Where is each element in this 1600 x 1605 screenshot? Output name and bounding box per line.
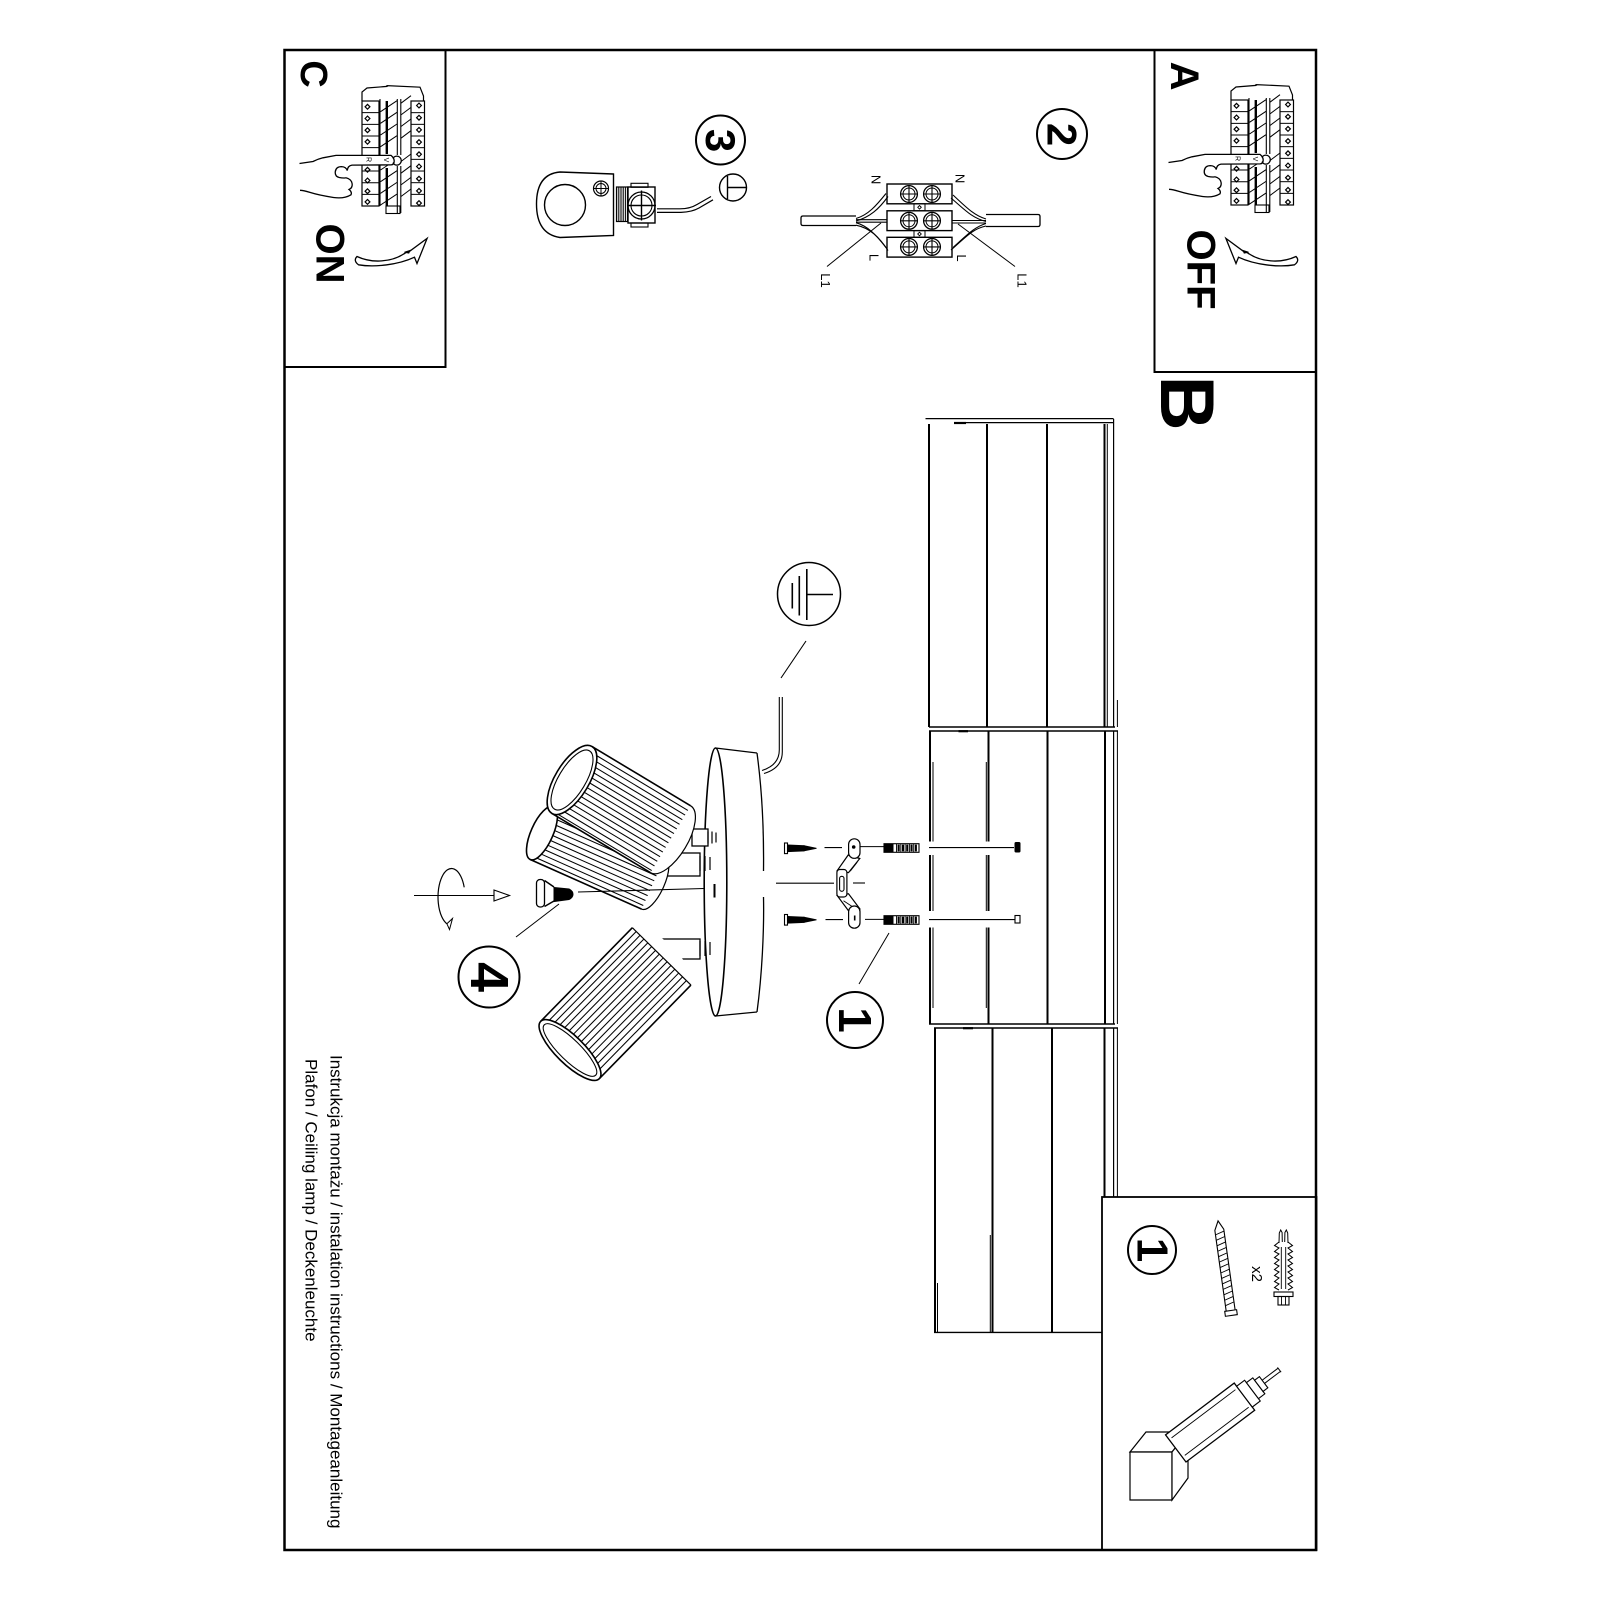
svg-text:R: R [365, 157, 372, 162]
svg-text:V: V [382, 158, 389, 163]
svg-text:L: L [867, 254, 882, 261]
svg-text:1: 1 [829, 1007, 881, 1033]
svg-text:3: 3 [697, 129, 744, 152]
svg-text:2: 2 [1039, 123, 1086, 146]
svg-text:C: C [292, 60, 334, 87]
svg-text:OFF: OFF [1179, 230, 1223, 310]
svg-text:x2: x2 [1248, 1266, 1265, 1282]
svg-text:L1: L1 [818, 273, 833, 287]
svg-text:Instrukcja montażu / instalati: Instrukcja montażu / instalation instruc… [327, 1055, 346, 1528]
svg-text:B: B [1144, 376, 1229, 431]
svg-text:L1: L1 [1015, 273, 1030, 287]
svg-text:N: N [869, 175, 884, 184]
svg-text:A: A [1162, 62, 1206, 91]
svg-text:L: L [954, 254, 969, 261]
svg-text:Plafon / Ceiling lamp / Decken: Plafon / Ceiling lamp / Deckenleuchte [302, 1059, 321, 1342]
svg-text:ON: ON [308, 224, 352, 284]
svg-text:4: 4 [459, 962, 519, 992]
svg-text:1: 1 [1128, 1238, 1177, 1262]
svg-text:N: N [953, 174, 968, 183]
